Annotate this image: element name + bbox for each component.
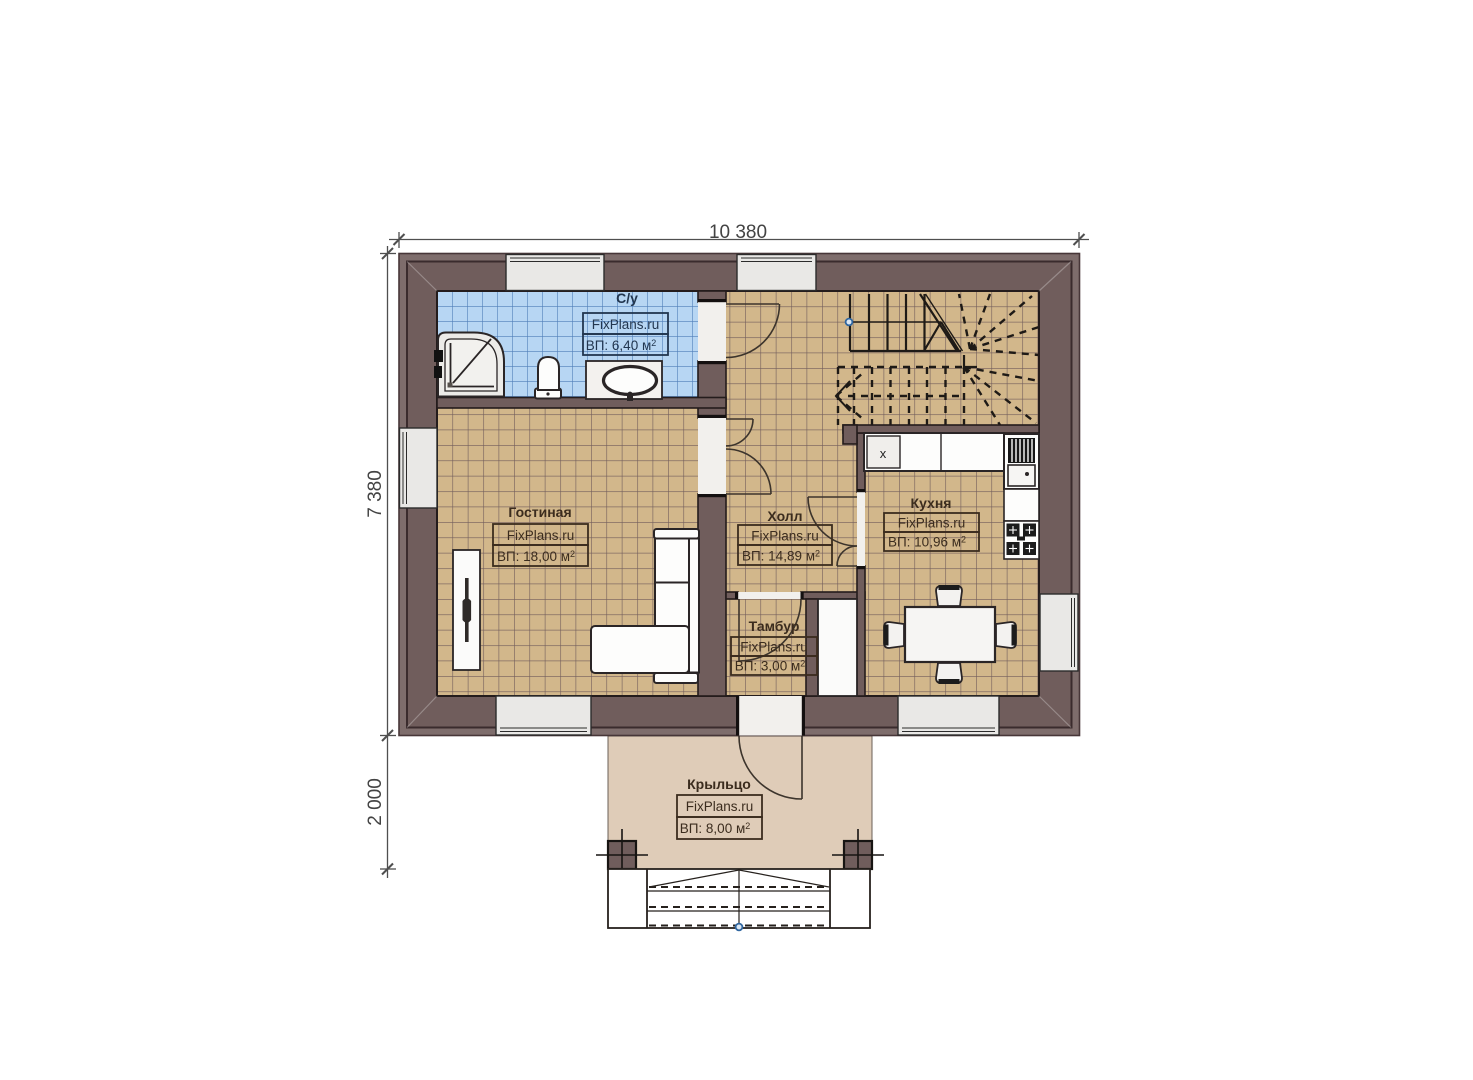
svg-text:Тамбур: Тамбур [749, 618, 800, 634]
svg-text:2 000: 2 000 [365, 778, 386, 826]
svg-text:ВП: 3,00 м2: ВП: 3,00 м2 [735, 659, 806, 674]
svg-text:Кухня: Кухня [911, 495, 952, 511]
svg-text:С/у: С/у [616, 290, 638, 306]
svg-text:FixPlans.ru: FixPlans.ru [592, 317, 660, 332]
svg-text:Холл: Холл [767, 508, 802, 524]
svg-text:x: x [880, 446, 887, 461]
svg-text:FixPlans.ru: FixPlans.ru [740, 640, 808, 655]
svg-text:ВП: 18,00 м2: ВП: 18,00 м2 [497, 549, 575, 564]
svg-text:ВП: 8,00 м2: ВП: 8,00 м2 [680, 821, 751, 836]
svg-text:7 380: 7 380 [365, 470, 386, 518]
svg-text:FixPlans.ru: FixPlans.ru [686, 799, 754, 814]
svg-text:10 380: 10 380 [709, 222, 767, 243]
svg-text:ВП: 6,40 м2: ВП: 6,40 м2 [586, 338, 657, 353]
svg-text:Гостиная: Гостиная [508, 504, 571, 520]
svg-text:FixPlans.ru: FixPlans.ru [898, 516, 966, 531]
svg-text:FixPlans.ru: FixPlans.ru [751, 529, 819, 544]
svg-text:Крыльцо: Крыльцо [687, 776, 751, 792]
svg-text:FixPlans.ru: FixPlans.ru [507, 528, 575, 543]
svg-text:ВП: 14,89 м2: ВП: 14,89 м2 [742, 549, 820, 564]
svg-text:ВП: 10,96 м2: ВП: 10,96 м2 [888, 535, 966, 550]
